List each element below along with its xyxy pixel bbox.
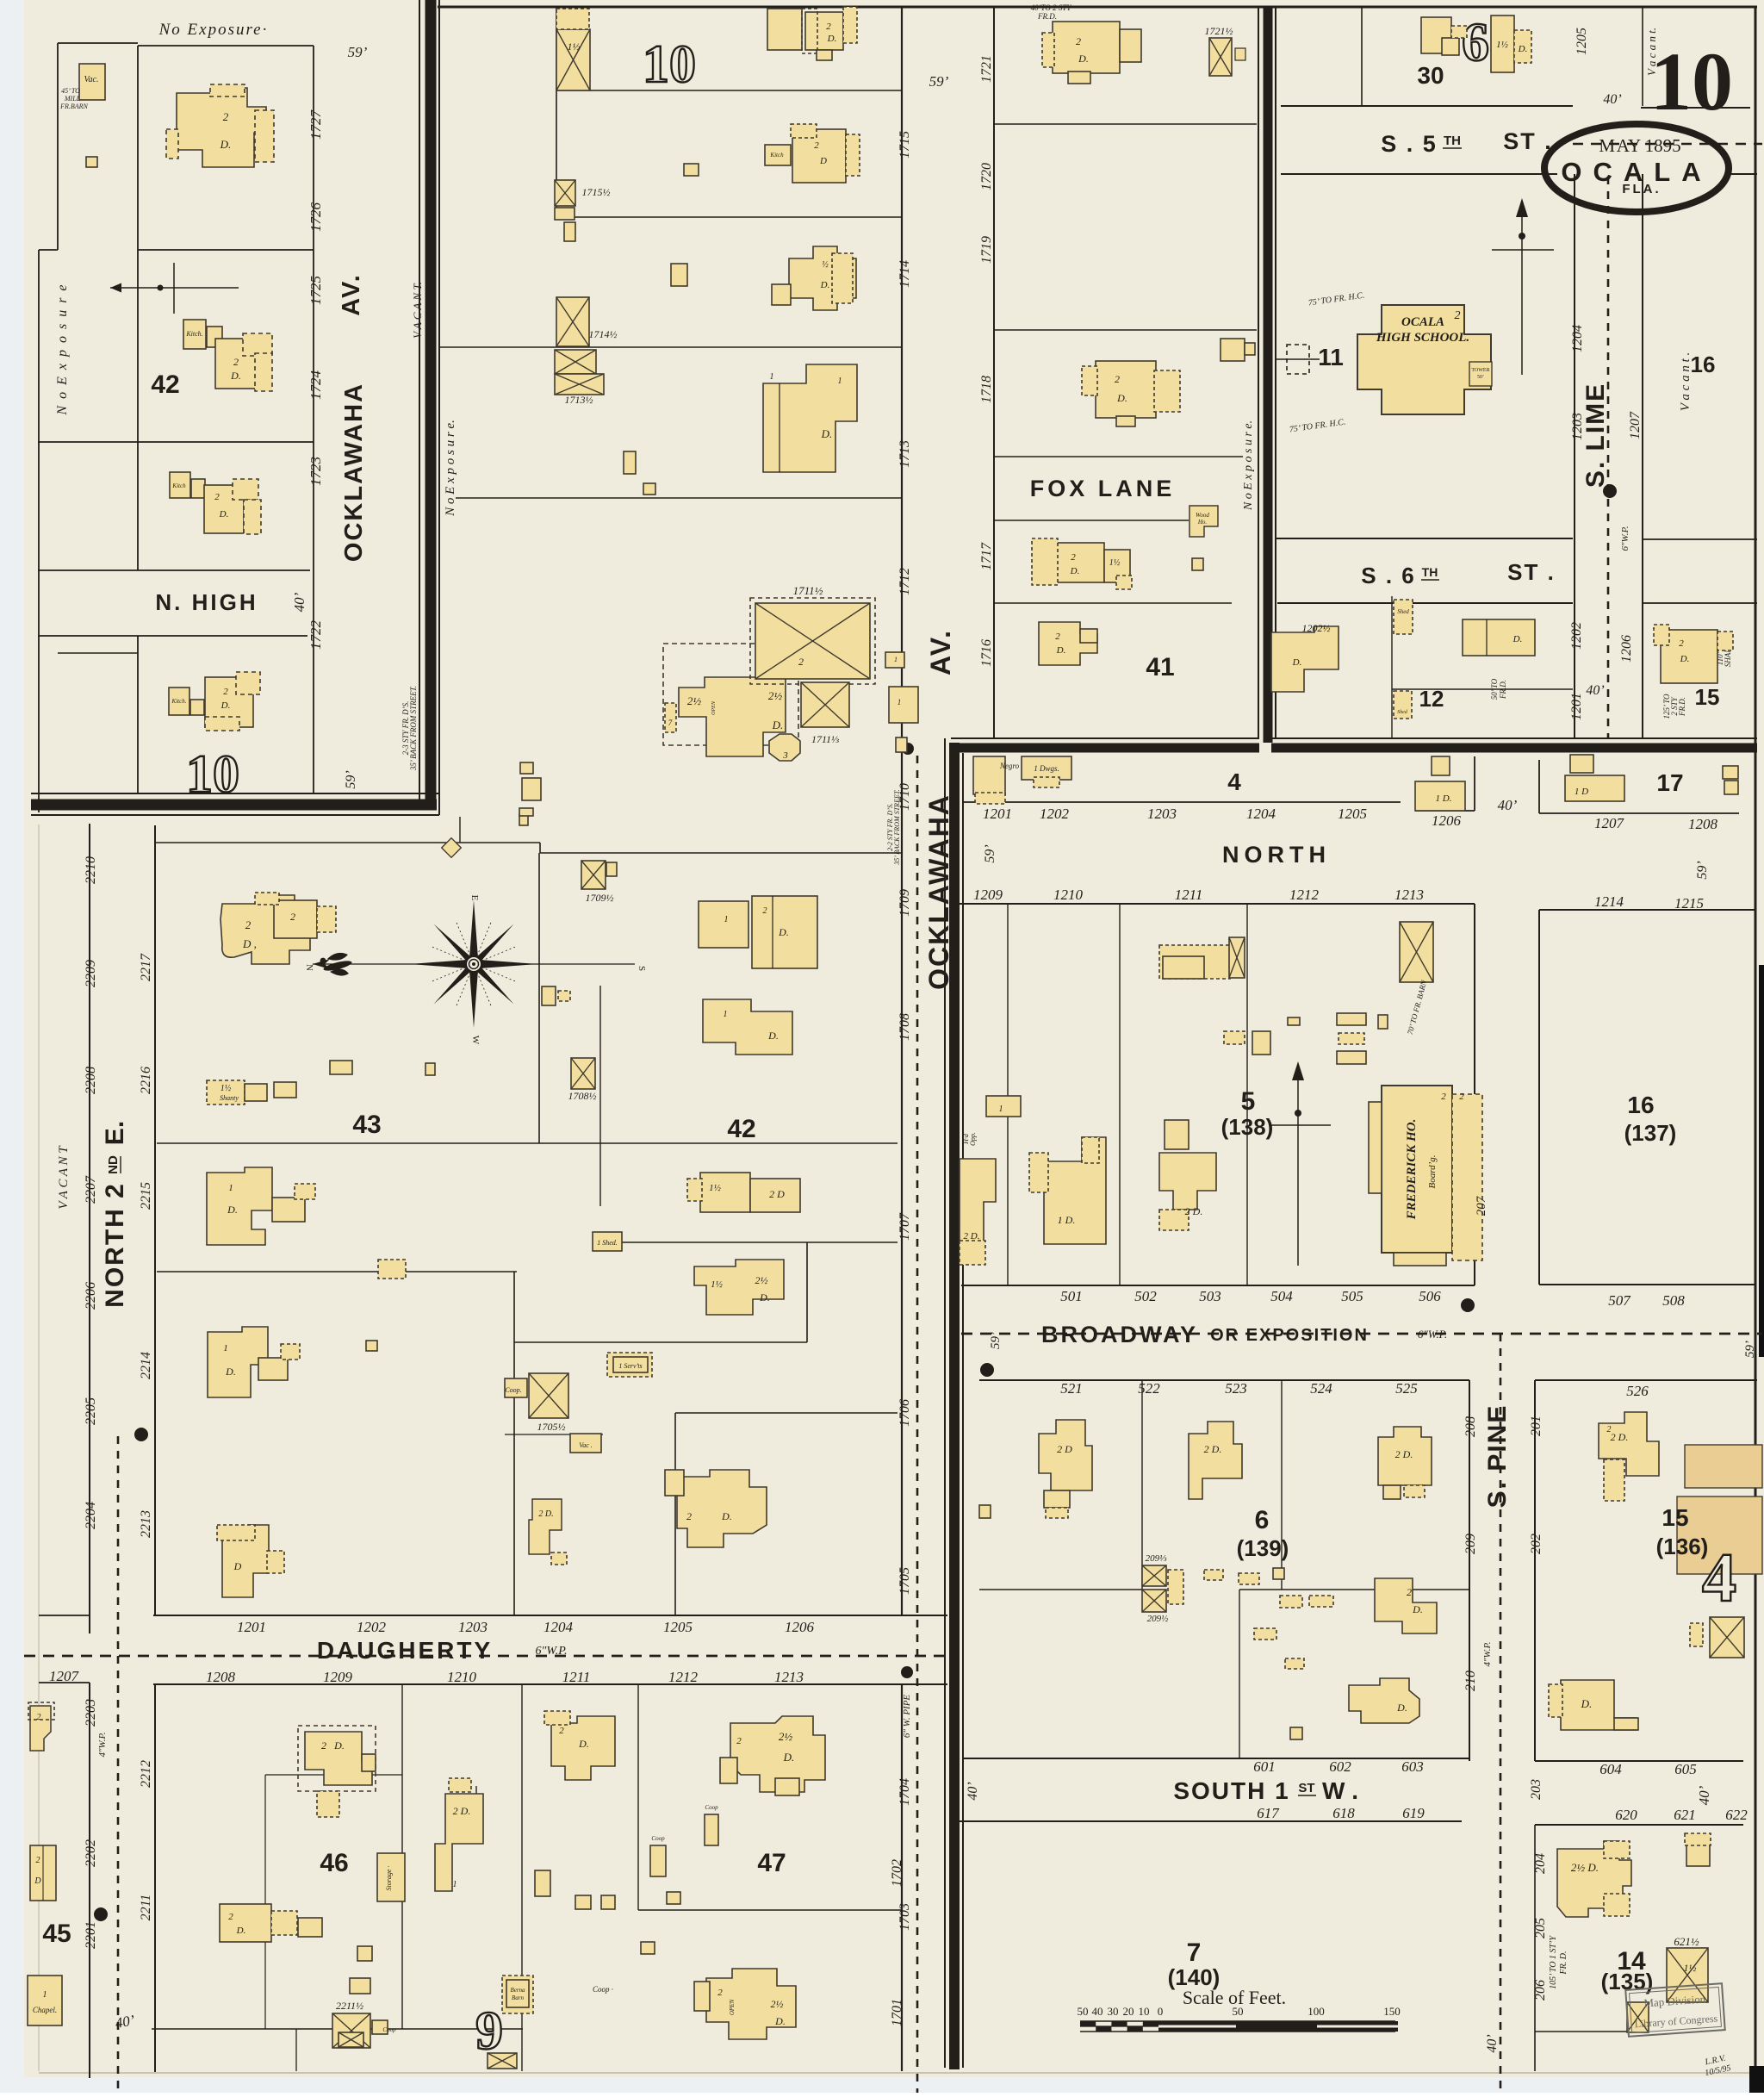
- svg-text:D: D: [233, 1560, 242, 1572]
- svg-text:619: 619: [1402, 1805, 1425, 1821]
- svg-text:2: 2: [814, 140, 819, 151]
- svg-text:1711½: 1711½: [793, 584, 823, 597]
- svg-text:SOUTH 1: SOUTH 1: [1173, 1777, 1289, 1804]
- svg-text:D: D: [819, 156, 827, 166]
- svg-text:AV.: AV.: [925, 629, 956, 675]
- svg-text:E.: E.: [101, 1121, 129, 1145]
- svg-text:1: 1: [770, 372, 774, 382]
- svg-text:N o E x p o s u r e: N o E x p o s u r e: [55, 283, 70, 415]
- svg-text:D.: D.: [1056, 645, 1066, 656]
- svg-text:1204: 1204: [543, 1619, 574, 1635]
- svg-text:1 D.: 1 D.: [1058, 1214, 1076, 1226]
- svg-text:S. PINE: S. PINE: [1483, 1404, 1512, 1509]
- svg-text:1: 1: [724, 915, 729, 924]
- svg-text:1½: 1½: [220, 1084, 232, 1093]
- svg-text:617: 617: [1257, 1805, 1280, 1821]
- svg-text:621½: 621½: [1674, 1935, 1699, 1948]
- svg-text:524: 524: [1310, 1380, 1332, 1397]
- svg-text:1: 1: [228, 1183, 233, 1193]
- svg-text:1202½: 1202½: [1302, 622, 1331, 634]
- svg-text:504: 504: [1270, 1288, 1293, 1304]
- svg-text:S: S: [637, 966, 647, 971]
- svg-text:1½: 1½: [568, 40, 581, 53]
- svg-text:40’: 40’: [1485, 2034, 1500, 2052]
- svg-text:45’ TO: 45’ TO: [61, 87, 80, 95]
- svg-text:FR.D.: FR.D.: [1037, 12, 1057, 21]
- svg-text:D.: D.: [225, 1366, 236, 1378]
- svg-text:1707: 1707: [898, 1212, 912, 1241]
- svg-text:1½: 1½: [1684, 1962, 1697, 1974]
- svg-text:FR. D.: FR. D.: [1559, 1951, 1568, 1976]
- svg-text:1207: 1207: [1628, 411, 1643, 439]
- svg-text:1206: 1206: [1432, 812, 1462, 829]
- svg-text:604: 604: [1599, 1761, 1622, 1777]
- svg-text:TH: TH: [1444, 134, 1461, 148]
- svg-text:601: 601: [1253, 1758, 1276, 1775]
- svg-text:Shed: Shed: [1397, 608, 1409, 615]
- svg-text:1711⅓: 1711⅓: [811, 733, 839, 745]
- svg-text:6″ W. PIPE: 6″ W. PIPE: [902, 1695, 912, 1739]
- svg-text:D.: D.: [783, 1751, 795, 1764]
- svg-text:D.: D.: [333, 1739, 345, 1752]
- svg-text:59’: 59’: [983, 844, 997, 862]
- svg-text:D.: D.: [759, 1291, 770, 1304]
- svg-text:100: 100: [1307, 2005, 1325, 2018]
- svg-text:46: 46: [320, 1849, 348, 1877]
- svg-text:10: 10: [186, 745, 239, 804]
- svg-text:D.: D.: [1518, 44, 1528, 54]
- svg-text:D.: D.: [827, 34, 837, 44]
- svg-text:35’ BACK FROM STREET.: 35’ BACK FROM STREET.: [893, 789, 901, 865]
- svg-text:59’: 59’: [989, 1332, 1003, 1349]
- svg-text:1: 1: [724, 1010, 728, 1019]
- svg-text:Berna: Berna: [510, 1987, 525, 1994]
- svg-text:1213: 1213: [774, 1669, 804, 1685]
- svg-text:1202: 1202: [357, 1619, 387, 1635]
- svg-text:50: 50: [1233, 2005, 1244, 2018]
- svg-text:1715½: 1715½: [582, 186, 611, 198]
- svg-text:603: 603: [1401, 1758, 1424, 1775]
- svg-text:10: 10: [1650, 35, 1733, 128]
- svg-text:2201: 2201: [84, 1921, 98, 1949]
- svg-text:59’: 59’: [929, 73, 949, 90]
- svg-text:1: 1: [898, 698, 902, 706]
- svg-text:40’: 40’: [1498, 797, 1518, 813]
- svg-text:2: 2: [1459, 1092, 1464, 1102]
- svg-text:1 Dwgs.: 1 Dwgs.: [1034, 764, 1059, 773]
- svg-text:16: 16: [1691, 352, 1716, 377]
- svg-text:210: 210: [1463, 1671, 1478, 1691]
- svg-text:1: 1: [43, 1990, 47, 2000]
- svg-text:1206: 1206: [785, 1619, 815, 1635]
- svg-text:1714: 1714: [898, 260, 912, 288]
- svg-text:N o E x p o s u r e.: N o E x p o s u r e.: [444, 420, 457, 517]
- svg-text:2: 2: [1455, 309, 1461, 322]
- svg-text:47: 47: [757, 1849, 786, 1877]
- svg-text:1721: 1721: [979, 55, 994, 83]
- svg-text:Chapel.: Chapel.: [33, 2006, 57, 2014]
- svg-text:0: 0: [1158, 2005, 1164, 2018]
- svg-text:35’ BACK FROM STREET.: 35’ BACK FROM STREET.: [409, 686, 418, 771]
- svg-text:50’: 50’: [1477, 375, 1484, 380]
- svg-text:2: 2: [1441, 1092, 1446, 1102]
- svg-text:2: 2: [223, 687, 228, 697]
- svg-text:ST .: ST .: [1507, 559, 1556, 585]
- svg-text:1718: 1718: [979, 376, 994, 403]
- svg-text:1½: 1½: [1496, 40, 1508, 50]
- svg-text:1705½: 1705½: [537, 1421, 566, 1433]
- svg-text:NORTH 2: NORTH 2: [101, 1182, 129, 1308]
- svg-text:1½: 1½: [711, 1279, 723, 1290]
- svg-text:D.: D.: [1292, 657, 1302, 668]
- svg-text:1720: 1720: [979, 163, 994, 190]
- svg-text:D.: D.: [774, 2015, 786, 2027]
- svg-text:525: 525: [1395, 1380, 1418, 1397]
- svg-text:2: 2: [559, 1726, 564, 1736]
- svg-text:D.: D.: [236, 1926, 246, 1936]
- svg-text:2 D.: 2 D.: [538, 1509, 553, 1519]
- svg-text:1724: 1724: [307, 370, 324, 401]
- svg-text:D.: D.: [220, 138, 232, 151]
- svg-text:1209: 1209: [323, 1669, 353, 1685]
- svg-text:6: 6: [1462, 11, 1489, 72]
- svg-text:D.: D.: [772, 719, 784, 731]
- svg-text:2: 2: [1115, 373, 1120, 385]
- svg-text:Barn: Barn: [512, 1994, 525, 2001]
- svg-text:1204: 1204: [1246, 806, 1276, 822]
- svg-text:2203: 2203: [84, 1699, 98, 1727]
- svg-text:1 Shed.: 1 Shed.: [597, 1239, 618, 1247]
- svg-text:2204: 2204: [84, 1502, 98, 1529]
- svg-text:7: 7: [1187, 1938, 1202, 1967]
- svg-text:HIGH SCHOOL.: HIGH SCHOOL.: [1376, 331, 1469, 345]
- svg-text:1725: 1725: [307, 276, 324, 305]
- svg-text:2: 2: [321, 1739, 326, 1752]
- svg-text:1712: 1712: [898, 568, 912, 595]
- svg-text:40’TO 2 STY: 40’TO 2 STY: [1031, 3, 1072, 12]
- svg-text:2: 2: [214, 492, 220, 502]
- svg-text:2211½: 2211½: [336, 2000, 363, 2012]
- svg-text:OCKLAWAHA: OCKLAWAHA: [923, 793, 954, 990]
- svg-text:2 D.: 2 D.: [1395, 1448, 1413, 1460]
- svg-text:1206: 1206: [1619, 635, 1634, 663]
- svg-text:2½: 2½: [768, 689, 783, 702]
- svg-text:1719: 1719: [979, 236, 994, 264]
- svg-text:59’: 59’: [1743, 1341, 1757, 1358]
- svg-text:Kitch: Kitch: [171, 482, 186, 489]
- svg-text:D.: D.: [1581, 1697, 1593, 1710]
- svg-text:2: 2: [1407, 1586, 1412, 1598]
- svg-text:OCKLAWAHA: OCKLAWAHA: [340, 383, 368, 562]
- svg-text:20: 20: [1123, 2005, 1134, 2018]
- svg-text:N o E x p o s u r e.: N o E x p o s u r e.: [1242, 420, 1255, 511]
- svg-text:1716: 1716: [979, 639, 994, 667]
- svg-text:4″W.P.: 4″W.P.: [1482, 1641, 1493, 1666]
- svg-text:40’: 40’: [1586, 683, 1604, 698]
- svg-text:N: N: [304, 964, 314, 971]
- svg-text:10: 10: [643, 35, 696, 94]
- svg-text:2207: 2207: [84, 1175, 98, 1204]
- svg-text:2½: 2½: [755, 1274, 768, 1286]
- svg-text:D.: D.: [778, 926, 789, 938]
- svg-text:4: 4: [1702, 1540, 1736, 1616]
- svg-text:2210: 2210: [84, 856, 98, 884]
- svg-text:FOX LANE: FOX LANE: [1030, 476, 1176, 501]
- svg-text:526: 526: [1626, 1383, 1649, 1399]
- svg-text:2 D.: 2 D.: [1611, 1431, 1629, 1443]
- svg-text:S. LIME: S. LIME: [1581, 383, 1610, 488]
- svg-text:TOWER: TOWER: [1471, 368, 1489, 373]
- svg-text:S . 5: S . 5: [1381, 131, 1438, 157]
- svg-text:Vac .: Vac .: [579, 1441, 593, 1449]
- svg-text:1215: 1215: [1674, 895, 1704, 912]
- svg-text:209: 209: [1463, 1534, 1478, 1554]
- svg-text:D ,: D ,: [242, 937, 257, 950]
- svg-text:15: 15: [1695, 684, 1720, 710]
- svg-text:Wood: Wood: [1196, 512, 1209, 519]
- svg-text:1210: 1210: [447, 1669, 477, 1685]
- svg-text:2208: 2208: [84, 1067, 98, 1094]
- svg-text:45: 45: [42, 1920, 71, 1948]
- svg-text:Coop.: Coop.: [505, 1386, 521, 1394]
- svg-text:7: 7: [668, 719, 673, 727]
- svg-text:4: 4: [1227, 768, 1241, 795]
- svg-text:30: 30: [1108, 2005, 1119, 2018]
- svg-text:V A C A N T: V A C A N T: [57, 1145, 71, 1210]
- svg-text:2: 2: [1055, 632, 1060, 642]
- svg-text:S . 6: S . 6: [1361, 563, 1415, 588]
- svg-text:1212: 1212: [668, 1669, 699, 1685]
- svg-text:D.: D.: [1116, 392, 1127, 404]
- svg-text:1203: 1203: [458, 1619, 488, 1635]
- svg-text:No Exposure·: No Exposure·: [158, 21, 269, 39]
- svg-text:42: 42: [727, 1115, 755, 1143]
- svg-text:2 D.: 2 D.: [1185, 1205, 1203, 1217]
- svg-text:1207: 1207: [1594, 815, 1625, 831]
- svg-text:1202: 1202: [1569, 622, 1584, 650]
- svg-text:1204: 1204: [1570, 325, 1585, 352]
- svg-text:622: 622: [1725, 1807, 1748, 1823]
- svg-text:D: D: [34, 1876, 41, 1886]
- svg-text:523: 523: [1225, 1380, 1247, 1397]
- svg-text:5: 5: [1241, 1087, 1256, 1116]
- svg-text:2: 2: [763, 906, 767, 916]
- svg-text:40: 40: [1092, 2005, 1103, 2018]
- svg-text:605: 605: [1674, 1761, 1697, 1777]
- svg-text:2 D: 2 D: [1057, 1443, 1072, 1455]
- svg-text:59’: 59’: [348, 44, 368, 60]
- svg-text:2 D.: 2 D.: [1204, 1443, 1222, 1455]
- svg-text:FLA.: FLA.: [1622, 182, 1661, 196]
- svg-text:V A C A N T.: V A C A N T.: [411, 282, 424, 339]
- svg-text:NORTH: NORTH: [1222, 842, 1331, 868]
- svg-text:1 D.: 1 D.: [1436, 793, 1452, 804]
- svg-text:201: 201: [1529, 1416, 1543, 1436]
- svg-text:1: 1: [223, 1343, 228, 1353]
- svg-text:1201: 1201: [1569, 693, 1584, 720]
- svg-text:2206: 2206: [84, 1282, 98, 1310]
- svg-text:OPEN: OPEN: [711, 700, 717, 715]
- svg-text:D.: D.: [220, 700, 231, 711]
- svg-text:1½: 1½: [1109, 558, 1121, 568]
- svg-text:(138): (138): [1221, 1114, 1274, 1140]
- svg-text:1209: 1209: [973, 887, 1003, 903]
- svg-text:59’: 59’: [344, 770, 358, 788]
- svg-text:1722: 1722: [307, 620, 324, 650]
- svg-text:1 D: 1 D: [1575, 787, 1588, 797]
- svg-text:40’: 40’: [1696, 1785, 1712, 1805]
- svg-text:3: 3: [782, 750, 788, 761]
- svg-text:2205: 2205: [84, 1397, 98, 1425]
- svg-text:D.: D.: [230, 370, 241, 382]
- svg-text:Shanty: Shanty: [220, 1094, 239, 1102]
- svg-text:1709½: 1709½: [586, 892, 614, 904]
- svg-text:2½ D.: 2½ D.: [1571, 1861, 1599, 1874]
- svg-text:6″W.P.: 6″W.P.: [1620, 526, 1630, 551]
- svg-text:17: 17: [1656, 769, 1683, 796]
- svg-text:2: 2: [736, 1736, 742, 1746]
- svg-text:2: 2: [223, 110, 229, 123]
- svg-text:2211: 2211: [139, 1895, 153, 1921]
- svg-text:2: 2: [36, 1856, 40, 1865]
- svg-text:Negro: Negro: [999, 762, 1020, 770]
- svg-text:42: 42: [151, 370, 179, 399]
- svg-text:Coop: Coop: [705, 1804, 718, 1811]
- svg-text:1721½: 1721½: [1205, 25, 1233, 37]
- svg-text:2209: 2209: [84, 960, 98, 987]
- svg-text:D.: D.: [1512, 634, 1523, 644]
- svg-text:Coop ·: Coop ·: [593, 1985, 613, 1994]
- svg-text:2213: 2213: [139, 1510, 153, 1538]
- svg-text:W .: W .: [1322, 1777, 1358, 1804]
- svg-text:502: 502: [1134, 1288, 1157, 1304]
- svg-text:MILL: MILL: [64, 95, 81, 103]
- svg-text:621: 621: [1674, 1807, 1696, 1823]
- svg-text:15: 15: [1662, 1504, 1688, 1531]
- svg-text:FR.D.: FR.D.: [1678, 697, 1686, 717]
- svg-text:2: 2: [290, 911, 295, 923]
- svg-text:506: 506: [1419, 1288, 1441, 1304]
- svg-text:2: 2: [1071, 552, 1076, 563]
- svg-text:11: 11: [1318, 344, 1344, 370]
- svg-text:30: 30: [1417, 62, 1444, 89]
- svg-text:D.: D.: [767, 1030, 779, 1042]
- svg-text:2: 2: [826, 22, 831, 32]
- svg-text:2: 2: [245, 918, 252, 931]
- svg-text:FR.BARN: FR.BARN: [59, 103, 88, 110]
- svg-text:105’ TO 1 ST’Y: 105’ TO 1 ST’Y: [1549, 1935, 1558, 1989]
- svg-text:D.: D.: [1078, 53, 1089, 65]
- svg-text:2: 2: [1607, 1425, 1612, 1434]
- svg-text:D.: D.: [721, 1510, 732, 1522]
- svg-text:D.: D.: [219, 509, 229, 520]
- svg-text:508: 508: [1662, 1292, 1685, 1309]
- svg-text:ST .: ST .: [1503, 128, 1553, 154]
- svg-text:1702: 1702: [890, 1859, 904, 1887]
- svg-text:2: 2: [228, 1912, 233, 1922]
- svg-text:2 D.: 2 D.: [453, 1805, 471, 1817]
- svg-text:1: 1: [999, 1105, 1003, 1114]
- svg-text:Opp.: Opp.: [969, 1132, 977, 1146]
- svg-text:1701: 1701: [890, 1999, 904, 2026]
- svg-text:M AY 1895: M AY 1895: [1599, 135, 1680, 156]
- svg-text:2: 2: [717, 1988, 723, 1998]
- svg-text:209⅓: 209⅓: [1146, 1553, 1168, 1564]
- svg-text:203: 203: [1529, 1779, 1543, 1800]
- svg-text:2202: 2202: [84, 1839, 98, 1867]
- svg-text:Kitch.: Kitch.: [171, 698, 187, 705]
- svg-text:602: 602: [1329, 1758, 1351, 1775]
- svg-text:Storage ·: Storage ·: [385, 1866, 393, 1891]
- svg-text:D.: D.: [227, 1204, 238, 1216]
- svg-text:2: 2: [37, 1713, 41, 1722]
- svg-text:1708½: 1708½: [568, 1090, 597, 1102]
- svg-text:1205: 1205: [1575, 28, 1589, 55]
- svg-text:50’ TO: 50’ TO: [1490, 678, 1499, 700]
- svg-text:12: 12: [1419, 686, 1444, 712]
- svg-text:1208: 1208: [206, 1669, 236, 1685]
- svg-text:1713½: 1713½: [565, 394, 593, 406]
- svg-text:D.: D.: [578, 1738, 589, 1750]
- svg-text:Kitch.: Kitch.: [185, 330, 202, 338]
- svg-text:Board’g.: Board’g.: [1427, 1154, 1438, 1188]
- svg-text:1211: 1211: [562, 1669, 591, 1685]
- svg-text:9: 9: [475, 2000, 503, 2061]
- svg-text:FREDERICK HO.: FREDERICK HO.: [1405, 1119, 1419, 1221]
- svg-text:1210: 1210: [1053, 887, 1084, 903]
- svg-text:Ho.: Ho.: [1197, 519, 1208, 526]
- svg-text:2½: 2½: [771, 1998, 784, 2010]
- svg-text:50: 50: [1078, 2005, 1089, 2018]
- svg-text:207: 207: [1475, 1195, 1488, 1216]
- svg-text:(136): (136): [1656, 1534, 1709, 1559]
- svg-text:522: 522: [1138, 1380, 1160, 1397]
- svg-text:1: 1: [838, 376, 842, 386]
- svg-text:(137): (137): [1624, 1120, 1677, 1146]
- svg-text:1715: 1715: [898, 131, 912, 159]
- svg-text:2217: 2217: [139, 953, 153, 981]
- svg-text:503: 503: [1199, 1288, 1221, 1304]
- svg-text:1727: 1727: [307, 109, 324, 140]
- svg-text:2½: 2½: [687, 694, 702, 707]
- svg-text:1717: 1717: [979, 542, 994, 570]
- svg-text:OPEN: OPEN: [729, 2000, 736, 2016]
- svg-text:2: 2: [233, 356, 239, 368]
- svg-text:AV.: AV.: [338, 273, 365, 316]
- svg-text:40’: 40’: [114, 2012, 136, 2032]
- svg-text:D.: D.: [1396, 1702, 1407, 1714]
- svg-text:1½: 1½: [709, 1183, 721, 1193]
- svg-text:1705: 1705: [898, 1567, 912, 1595]
- svg-text:FR.D.: FR.D.: [1499, 680, 1507, 700]
- svg-text:2: 2: [1679, 638, 1684, 649]
- svg-text:Vac.: Vac.: [84, 75, 99, 84]
- svg-text:6″W.P.: 6″W.P.: [1418, 1328, 1447, 1341]
- svg-text:D.: D.: [1412, 1603, 1423, 1615]
- svg-text:1703: 1703: [898, 1903, 912, 1931]
- svg-text:202: 202: [1529, 1534, 1543, 1554]
- svg-text:1201: 1201: [237, 1619, 266, 1635]
- svg-text:6″W.P.: 6″W.P.: [536, 1645, 568, 1658]
- svg-text:1706: 1706: [898, 1399, 912, 1427]
- svg-text:E: E: [469, 895, 480, 901]
- svg-text:2: 2: [1076, 35, 1081, 47]
- svg-text:OCALA: OCALA: [1401, 315, 1444, 329]
- svg-text:618: 618: [1332, 1805, 1355, 1821]
- svg-text:1708: 1708: [898, 1013, 912, 1041]
- svg-text:2: 2: [798, 656, 804, 668]
- svg-text:41: 41: [1146, 653, 1174, 681]
